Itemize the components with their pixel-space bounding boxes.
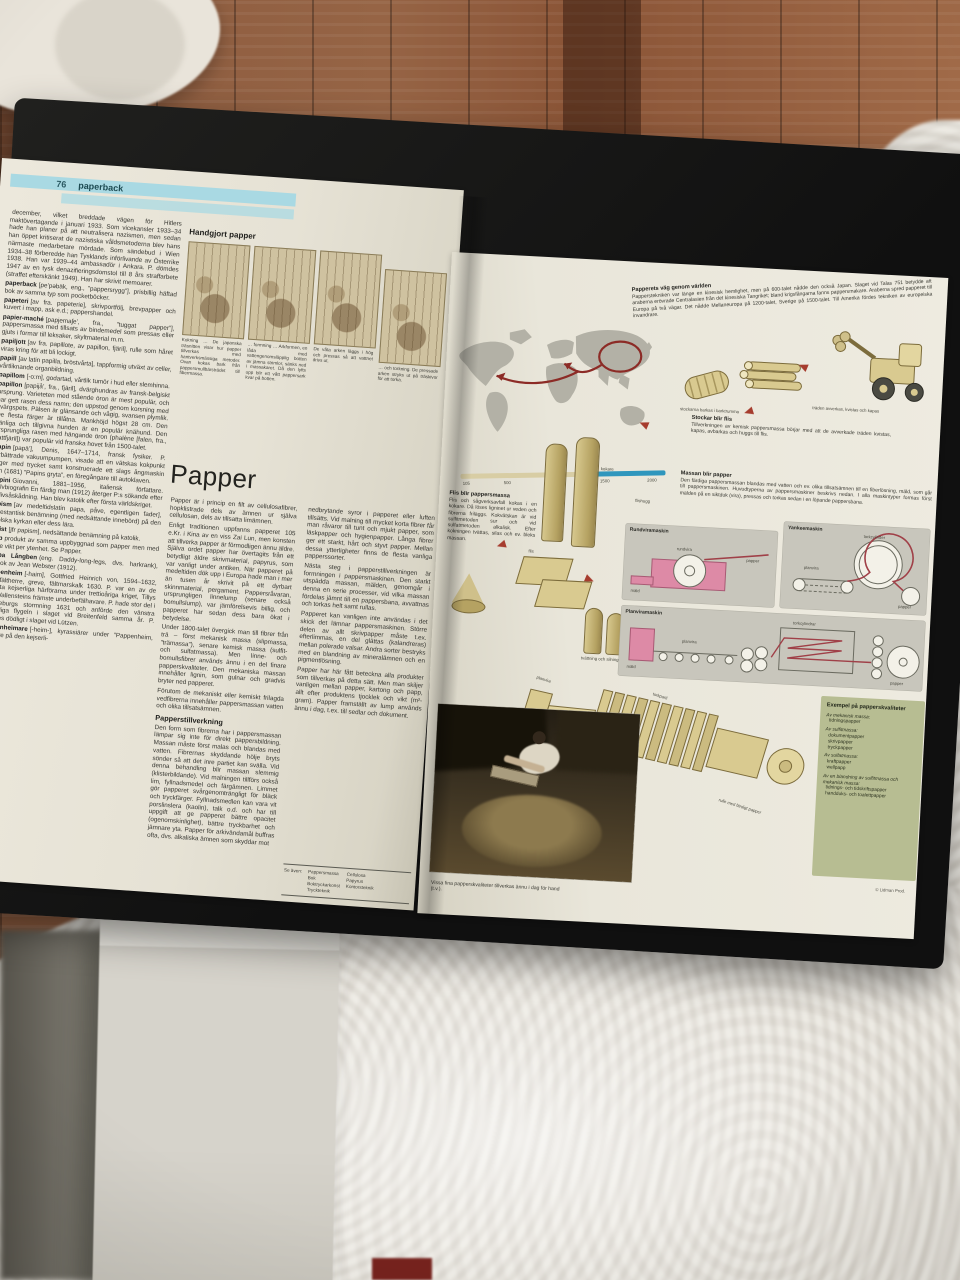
yankee-graphic: [780, 522, 930, 616]
article-paragraph: Enligt traditionen uppfanns papperet 105…: [162, 522, 296, 631]
quality-group-items: dokumentpapper skrivpapper tryckpapper: [827, 733, 917, 755]
woodcut-illustration: [248, 246, 316, 344]
article-column-1: Papper är i princip en filt av cellulosa…: [144, 497, 297, 887]
woodcut-caption: De våta arken läggs i hög och pressas så…: [310, 346, 374, 406]
cabinet-side: [92, 920, 340, 1280]
digester-tower: [571, 437, 601, 548]
handmade-paper-panels: Kokning … De japanska träsnitten visar h…: [177, 241, 450, 425]
machine-part-label: papper: [890, 681, 903, 687]
article-paragraph: Papper har här fått beteckna alla produk…: [294, 666, 424, 721]
see-also-label: Se även:: [283, 867, 303, 892]
woodcut-illustration: [182, 241, 250, 339]
woodcut-illustration: [379, 269, 447, 367]
woodcut-caption: … och torkning. De pressade arken stryks…: [375, 365, 439, 425]
see-also-list: Cellulosa Papyrus Kontorsteknik: [345, 872, 374, 898]
entry-term: papism: [0, 500, 12, 509]
page-number: 76: [56, 178, 67, 189]
chip-container: [534, 579, 592, 609]
see-also-list: Pappersmassa Bok Boktryckarkonst Tryckte…: [307, 869, 341, 895]
world-map-graphic: [450, 320, 666, 464]
machine-part-label: planvira: [804, 565, 819, 571]
article-column-2: nedbrytande syror i papperet eller lufte…: [284, 506, 435, 866]
handmade-paper-heading: Handgjort papper: [189, 227, 256, 241]
woodcut-caption: Kokning … De japanska träsnitten visar h…: [178, 337, 242, 397]
qualities-title: Exempel på papperskvaliteter: [827, 702, 919, 713]
left-page: 76 paperback december, vilket breddade v…: [0, 158, 464, 911]
entry-text: [papijå’, fra., fjäril], dvärghundras av…: [0, 382, 170, 452]
woodcut-caption: … formning … Arkformen, en låda med vatt…: [244, 342, 308, 402]
tractor-graphic: [810, 325, 940, 413]
washing-tower: [583, 607, 603, 654]
woodcut-panel: … och torkning. De pressade arken stryks…: [375, 269, 445, 425]
paper-qualities-box: Exempel på papperskvaliteter Av mekanisk…: [812, 696, 925, 881]
timeline-tick: 500: [504, 480, 511, 485]
dictionary-entry: Pappenheim[-haim], Gottfried Heinrich vo…: [0, 568, 157, 634]
machine-part-label: planvira: [682, 639, 697, 645]
article-paragraph: nedbrytande syror i papperet eller lufte…: [305, 506, 435, 569]
running-head: paperback: [78, 180, 124, 193]
section-massan-blir-papper: Massan blir papper Den färdiga pappersma…: [680, 470, 933, 509]
article-paragraph: Den form som fibrerna har i pappersmassa…: [147, 724, 282, 848]
timeline-tick: 2000: [647, 477, 657, 482]
machine-part-label: torkcylinder: [864, 534, 886, 540]
machine-part-label: papper: [746, 558, 759, 564]
entry-text: [-haim], Gottfried Heinrich von, 1594–16…: [0, 571, 157, 628]
rundvira-graphic: [622, 523, 778, 607]
entry-term: papp: [0, 534, 3, 542]
right-page: Papperets väg genom världen Papperstekni…: [417, 252, 948, 939]
timeline-tick: 1500: [600, 478, 610, 483]
world-map: [450, 320, 666, 464]
hand-papermaking-photo: [430, 704, 641, 882]
floor-object: [372, 1258, 432, 1280]
see-also-box: Se även: Pappersmassa Bok Boktryckarkons…: [281, 863, 411, 904]
machine-diagram-planviramaskin: Planviramaskin mäld planvira torkc: [618, 605, 925, 691]
woodcut-panel: … formning … Arkformen, en låda med vatt…: [243, 246, 314, 416]
article-paragraph: Nästa steg i papperstillverkningen är fo…: [301, 562, 431, 617]
dictionary-entry: december, vilket breddade vägen för Hitl…: [6, 209, 182, 290]
chipper-label: flishugg: [635, 498, 650, 504]
log-tractor-illustration: [810, 325, 940, 418]
photo-of-open-book: 76 paperback december, vilket breddade v…: [0, 0, 960, 1280]
barking-drum-graphic: [676, 360, 741, 413]
flow-arrow-icon: [743, 407, 754, 417]
credit-line: © Lidman Prod.: [811, 884, 905, 894]
entry-term: papillom: [0, 371, 25, 380]
woodcut-panel: De våta arken läggs i hög och pressas så…: [309, 250, 380, 420]
machine-diagram-rundviramaskin: Rundviramaskin mäld rundvira papper: [622, 523, 778, 607]
journey-caption: Papperets väg genom världen Papperstekni…: [632, 272, 933, 320]
article-title: Papper: [169, 459, 257, 496]
chips-label: flis: [528, 548, 534, 553]
log-bundle-illustration: [736, 353, 805, 407]
entry-term: papist: [0, 525, 7, 533]
machine-diagram-yankeemaskin: Yankeemaskin planvira torkcylinder pappe…: [780, 522, 930, 616]
article-paragraph: Under 1800-talet övergick man till fibre…: [158, 624, 289, 694]
digester-tower: [541, 443, 568, 542]
photo-background-wall: [555, 710, 640, 775]
log-bundle-graphic: [737, 353, 805, 402]
section-stockar-blir-flis: Stockar blir flis Tillverkningen av kemi…: [691, 415, 892, 445]
dictionary-entry: papillon[papijå’, fra., fjäril], dvärghu…: [0, 381, 170, 454]
machine-part-label: mäld: [630, 588, 639, 593]
planvira-graphic: [618, 605, 925, 691]
entry-term: Papin: [0, 444, 11, 452]
machine-part-label: mäld: [626, 664, 635, 669]
article-paragraph: Papperet kan vanligen inte användas i de…: [297, 610, 427, 673]
woodcut-illustration: [314, 250, 382, 348]
woodcut-panel: Kokning … De japanska träsnitten visar h…: [177, 241, 248, 411]
machine-part-label: rundvira: [677, 546, 692, 552]
photo-caption: Vissa fina papperskvaliteter tillverkas …: [430, 880, 562, 899]
paper-vat: [460, 791, 604, 870]
machine-part-label: papper: [898, 604, 911, 610]
entry-text: december, vilket breddade vägen för Hitl…: [6, 209, 182, 288]
